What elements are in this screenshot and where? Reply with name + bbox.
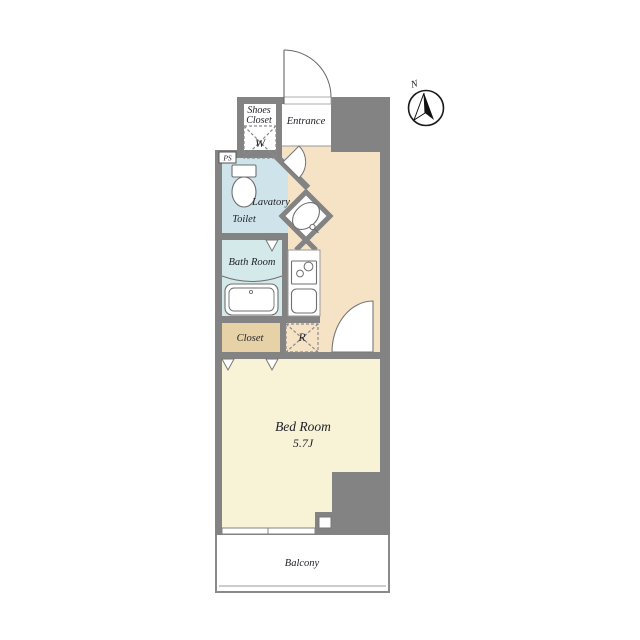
floorplan-canvas: N Shoes Closet Entrance W PS Lavatory To…	[0, 0, 640, 640]
wall-right	[380, 152, 390, 472]
pipe-notch	[319, 517, 331, 528]
floorplan-drawing: N Shoes Closet Entrance W PS Lavatory To…	[0, 0, 640, 640]
wall-bath-kitchen	[282, 240, 288, 323]
north-compass-icon: N	[409, 78, 444, 126]
wall-bedroom-top	[215, 352, 390, 359]
wall-top-left	[237, 97, 284, 104]
toilet-tank	[232, 165, 256, 177]
bathtub-outer	[225, 284, 278, 315]
label-washer: W	[255, 136, 266, 150]
label-lavatory: Lavatory	[251, 197, 290, 208]
kitchen-sink	[292, 289, 317, 313]
label-bedroom: Bed Room	[275, 419, 331, 434]
wall-shoes-divider	[276, 104, 282, 158]
wall-left	[215, 158, 222, 535]
entrance-door-arc	[284, 50, 331, 97]
wall-bath-bottom	[215, 316, 320, 323]
compass-north-label: N	[409, 78, 420, 91]
label-bedroom-size: 5.7J	[293, 436, 314, 450]
wall-closet-divider	[280, 323, 286, 352]
label-bath-room: Bath Room	[229, 257, 276, 268]
wall-block-top-right	[331, 97, 390, 152]
entrance-threshold	[284, 97, 331, 104]
label-closet: Closet	[237, 333, 265, 344]
label-balcony: Balcony	[285, 558, 320, 569]
label-entrance: Entrance	[286, 116, 326, 127]
bedroom-window	[222, 528, 315, 534]
basin-faucet	[310, 224, 315, 229]
label-refrigerator: R	[297, 330, 306, 344]
wall-toilet-bottom	[215, 233, 288, 240]
label-shoes-closet-line2: Closet	[246, 115, 272, 126]
label-pipe-space: PS	[222, 154, 232, 163]
wall-left-upper	[237, 97, 244, 158]
label-toilet: Toilet	[232, 214, 257, 225]
wall-block-bottom-right	[332, 472, 390, 535]
